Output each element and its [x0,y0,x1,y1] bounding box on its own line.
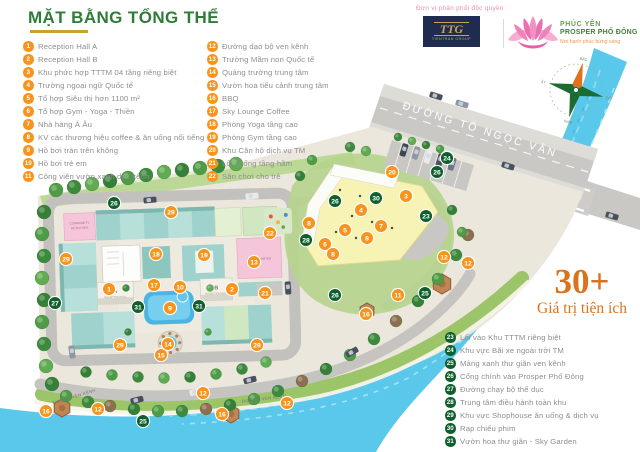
legend-item: 21Lối xuống tầng hầm [207,157,329,170]
svg-text:13: 13 [250,259,258,266]
legend-label: Mảng xanh thư giãn ven kênh [460,359,566,368]
tree-icon [447,205,457,215]
legend-item: 25Mảng xanh thư giãn ven kênh [445,357,599,370]
svg-text:ACTIVITIES: ACTIVITIES [71,226,88,231]
map-marker-29: 29 [59,252,72,265]
svg-text:29: 29 [62,256,70,263]
legend-badge: 28 [445,397,456,408]
legend-group-1: 1Reception Hall A2Reception Hall B3Khu p… [23,40,204,183]
legend-item: 17Sky Lounge Coffee [207,105,329,118]
legend-label: Công viên vườn xanh dọc kênh [38,172,149,181]
legend-label: Hồ bơi tràn trên không [38,146,118,155]
svg-text:12: 12 [199,390,207,397]
svg-text:17: 17 [150,282,158,289]
amenities-caption: Giá trị tiện ích [526,300,638,317]
legend-item: 18Phòng Yoga tầng cao [207,118,329,131]
svg-text:20: 20 [388,169,396,176]
ttg-monogram: TTG [434,22,469,36]
compass-rose: BẮC ĐÔNG NAM TÂY [541,55,611,125]
map-marker-27: 27 [48,296,61,309]
legend-badge: 27 [445,384,456,395]
legend-badge: 18 [207,119,218,130]
map-marker-29: 29 [164,205,177,218]
tree-icon [368,333,380,345]
legend-item: 4Trường ngoại ngữ Quốc tế [23,79,204,92]
tree-icon [104,400,116,412]
svg-text:12: 12 [464,260,472,267]
map-marker-26: 26 [430,165,443,178]
svg-text:BẮC: BẮC [579,56,588,63]
car-icon [143,196,156,203]
svg-text:2: 2 [230,286,234,293]
svg-text:29: 29 [167,209,175,216]
legend-label: Lối xuống tầng hầm [222,159,292,168]
svg-text:8: 8 [331,251,335,258]
map-marker-26: 26 [107,196,120,209]
page-title: MẶT BẰNG TỔNG THỂ [28,8,219,28]
legend-item: 12Đường dạo bộ ven kênh [207,40,329,53]
tree-icon [422,141,430,149]
legend-item: 14Quảng trường trung tâm [207,66,329,79]
legend-item: 16BBQ [207,92,329,105]
tree-icon [176,405,188,417]
legend-item: 26Cổng chính vào Prosper Phố Đông [445,370,599,383]
legend-item: 27Đường chạy bộ thể dục [445,383,599,396]
brand-line1: PHÚC YÊN [560,21,638,29]
svg-text:18: 18 [152,251,160,258]
legend-badge: 2 [23,54,34,65]
tree-icon [35,227,49,241]
legend-badge: 30 [445,423,456,434]
map-marker-4: 4 [354,203,367,216]
map-marker-12: 12 [280,396,293,409]
legend-badge: 5 [23,93,34,104]
legend-item: 20Khu Căn hộ dịch vụ TM [207,144,329,157]
svg-text:COMMUNITY: COMMUNITY [70,221,91,226]
svg-text:26: 26 [331,198,339,205]
map-marker-12: 12 [196,386,209,399]
legend-item: 15Vườn hoa tiểu cảnh trung tâm [207,79,329,92]
svg-text:29: 29 [116,342,124,349]
map-marker-23: 23 [419,209,432,222]
svg-text:6: 6 [323,241,327,248]
map-marker-29: 29 [113,338,126,351]
legend-item: 24Khu vực Bãi xe ngoài trời TM [445,344,599,357]
legend-label: Vườn hoa thư giãn - Sky Garden [460,437,577,446]
svg-text:25: 25 [421,290,429,297]
legend-label: Trường Mầm non Quốc tế [222,55,314,64]
svg-text:RECEPTION HALL: RECEPTION HALL [205,291,228,296]
svg-text:7: 7 [379,223,383,230]
map-marker-10: 10 [173,280,186,293]
map-marker-3: 3 [399,189,412,202]
tree-icon [45,377,59,391]
masterplan-poster: ĐƯỜNG TÔ NGỌC VÂN ĐƯỜNG VEN KÊNH ĐƯỜNG V… [0,0,640,452]
legend-badge: 26 [445,371,456,382]
legend-item: 8KV các thương hiệu coffee & ăn uống nổi… [23,131,204,144]
legend-group-3: 23Lối vào Khu TTTM riêng biệt24Khu vực B… [445,331,599,448]
legend-item: 22Sân chơi cho trẻ [207,170,329,183]
svg-text:B: B [214,285,218,291]
legend-item: 1Reception Hall A [23,40,204,53]
map-marker-5: 5 [338,223,351,236]
title-underline [30,30,88,33]
map-marker-12: 12 [461,256,474,269]
legend-label: Rạp chiếu phim [460,424,516,433]
svg-text:31: 31 [134,304,142,311]
tree-icon [450,249,462,261]
map-marker-22: 22 [263,226,276,239]
legend-label: Tổ hợp Gym - Yoga - Thiền [38,107,135,116]
amenities-highlight: 30+ Giá trị tiện ích [526,264,638,317]
legend-badge: 31 [445,436,456,447]
svg-text:26: 26 [110,200,118,207]
svg-text:25: 25 [139,418,147,425]
tree-icon [211,369,222,380]
legend-label: Reception Hall B [38,55,98,64]
legend-item: 31Vườn hoa thư giãn - Sky Garden [445,435,599,448]
distributor-heading: Đơn vị phân phối độc quyền [416,5,504,12]
legend-badge: 6 [23,106,34,117]
tree-icon [128,403,140,415]
legend-badge: 23 [445,332,456,343]
tree-icon [159,373,170,384]
legend-badge: 25 [445,358,456,369]
svg-text:14: 14 [164,341,172,348]
ttg-name: TIENTRAN GROUP [432,37,471,41]
svg-text:31: 31 [195,303,203,310]
legend-label: Hồ bơi trẻ em [38,159,87,168]
map-marker-31: 31 [131,300,144,313]
map-marker-16: 16 [39,404,52,417]
map-marker-18: 18 [149,247,162,260]
tree-icon [37,205,51,219]
tree-icon [35,271,49,285]
legend-badge: 1 [23,41,34,52]
legend-label: Cổng chính vào Prosper Phố Đông [460,372,584,381]
map-marker-31: 31 [192,299,205,312]
map-marker-17: 17 [147,278,160,291]
legend-item: 29Khu vực Shophouse ăn uống & dịch vụ [445,409,599,422]
car-icon [285,281,292,294]
legend-label: Sân chơi cho trẻ [222,172,281,181]
legend-item: 6Tổ hợp Gym - Yoga - Thiền [23,105,204,118]
tree-icon [107,370,118,381]
map-marker-26: 26 [328,194,341,207]
svg-text:24: 24 [443,155,451,162]
map-marker-13: 13 [247,255,260,268]
svg-text:9: 9 [168,305,172,312]
map-marker-24: 24 [440,151,453,164]
tree-icon [408,137,416,145]
tree-icon [207,285,214,292]
tree-icon [436,145,444,153]
tree-icon [432,273,444,285]
tree-icon [185,372,196,383]
svg-text:19: 19 [200,252,208,259]
legend-item: 3Khu phức hợp TTTM 04 tầng riêng biệt [23,66,204,79]
svg-text:26: 26 [433,169,441,176]
map-marker-28: 28 [299,233,312,246]
tree-icon [205,329,212,336]
svg-text:8: 8 [307,220,311,227]
legend-item: 11Công viên vườn xanh dọc kênh [23,170,204,183]
legend-label: Khu Căn hộ dịch vụ TM [222,146,305,155]
legend-item: 23Lối vào Khu TTTM riêng biệt [445,331,599,344]
map-marker-30: 30 [369,191,382,204]
legend-label: Tổ hợp Siêu thị hơn 1100 m² [38,94,140,103]
legend-label: Phòng Yoga tầng cao [222,120,298,129]
legend-label: Trường ngoại ngữ Quốc tế [38,81,133,90]
legend-badge: 9 [23,145,34,156]
svg-text:NAM: NAM [563,119,572,125]
svg-text:27: 27 [51,300,59,307]
legend-badge: 13 [207,54,218,65]
svg-text:ĐÔNG: ĐÔNG [605,95,611,103]
tree-icon [49,183,63,197]
legend-label: Reception Hall A [38,42,97,51]
car-icon [245,192,258,199]
tree-icon [457,227,467,237]
legend-label: Sky Lounge Coffee [222,107,290,116]
legend-item: 28Trung tâm điều hành toàn khu [445,396,599,409]
legend-badge: 12 [207,41,218,52]
legend-badge: 7 [23,119,34,130]
tree-icon [390,315,402,327]
legend-badge: 8 [23,132,34,143]
legend-label: Lối vào Khu TTTM riêng biệt [460,333,561,342]
svg-text:11: 11 [394,292,401,299]
svg-text:23: 23 [422,213,430,220]
svg-text:16: 16 [218,411,226,418]
tree-icon [345,142,355,152]
legend-badge: 20 [207,145,218,156]
svg-text:1: 1 [107,286,111,293]
map-marker-11: 11 [391,288,404,301]
map-marker-29: 29 [250,338,263,351]
svg-text:16: 16 [42,408,50,415]
map-marker-16: 16 [359,307,372,320]
tree-icon [39,359,53,373]
legend-label: Khu vực Shophouse ăn uống & dịch vụ [460,411,599,420]
legend-label: Nhà hàng Á Âu [38,120,92,129]
map-marker-19: 19 [197,248,210,261]
lotus-logo-icon [506,14,560,54]
legend-label: Khu phức hợp TTTM 04 tầng riêng biệt [38,68,177,77]
map-marker-12: 12 [437,250,450,263]
map-marker-21: 21 [258,286,271,299]
map-marker-1: 1 [102,282,115,295]
svg-text:30: 30 [372,195,380,202]
legend-badge: 15 [207,80,218,91]
svg-text:22: 22 [266,230,274,237]
brand-tagline: Nơi hạnh phúc bừng sáng [560,39,638,45]
legend-badge: 16 [207,93,218,104]
legend-item: 10Hồ bơi trẻ em [23,157,204,170]
legend-item: 30Rạp chiếu phim [445,422,599,435]
legend-badge: 21 [207,158,218,169]
svg-text:4: 4 [359,207,363,214]
legend-badge: 19 [207,132,218,143]
legend-badge: 3 [23,67,34,78]
legend-label: BBQ [222,94,239,103]
legend-badge: 10 [23,158,34,169]
tree-icon [35,315,49,329]
amenities-count: 30+ [526,264,638,300]
legend-badge: 29 [445,410,456,421]
svg-text:5: 5 [343,227,347,234]
map-marker-8: 8 [360,231,373,244]
legend-label: Trung tâm điều hành toàn khu [460,398,566,407]
svg-text:29: 29 [253,342,261,349]
tree-icon [81,367,92,378]
svg-text:28: 28 [302,237,310,244]
legend-label: Vườn hoa tiểu cảnh trung tâm [222,81,329,90]
legend-item: 2Reception Hall B [23,53,204,66]
tree-icon [296,375,308,387]
map-marker-16: 16 [215,407,228,420]
svg-text:26: 26 [331,292,339,299]
legend-label: Khu vực Bãi xe ngoài trời TM [460,346,564,355]
legend-label: Phòng Gym tầng cao [222,133,297,142]
logo-divider [503,19,504,48]
legend-badge: 14 [207,67,218,78]
legend-badge: 24 [445,345,456,356]
svg-text:3: 3 [404,193,408,200]
map-marker-12: 12 [91,402,104,415]
legend-item: 13Trường Mầm non Quốc tế [207,53,329,66]
svg-text:8: 8 [365,235,369,242]
legend-item: 7Nhà hàng Á Âu [23,118,204,131]
svg-text:15: 15 [157,352,165,359]
map-marker-7: 7 [374,219,387,232]
legend-group-2: 12Đường dạo bộ ven kênh13Trường Mầm non … [207,40,329,183]
tree-icon [125,329,132,336]
svg-text:10: 10 [176,284,184,291]
legend-item: 19Phòng Gym tầng cao [207,131,329,144]
map-marker-2: 2 [225,282,238,295]
map-marker-20: 20 [385,165,398,178]
svg-text:21: 21 [261,290,269,297]
svg-text:12: 12 [440,254,448,261]
legend-label: Quảng trường trung tâm [222,68,309,77]
map-marker-8: 8 [302,216,315,229]
svg-text:16: 16 [362,311,370,318]
tree-icon [361,146,371,156]
tientran-group-logo: TTG TIENTRAN GROUP [423,16,480,47]
tree-icon [261,357,272,368]
legend-item: 5Tổ hợp Siêu thị hơn 1100 m² [23,92,204,105]
tree-icon [320,363,332,375]
legend-badge: 17 [207,106,218,117]
brand-wordmark: PHÚC YÊN PROSPER PHỐ ĐÔNG Nơi hạnh phúc … [560,21,638,45]
tree-icon [37,337,51,351]
legend-badge: 11 [23,171,34,182]
legend-badge: 4 [23,80,34,91]
map-marker-8: 8 [326,247,339,260]
tree-icon [237,364,248,375]
map-marker-25: 25 [136,414,149,427]
legend-badge: 22 [207,171,218,182]
svg-text:TÂY: TÂY [541,78,547,85]
map-marker-25: 25 [418,286,431,299]
legend-label: Đường chạy bộ thể dục [460,385,544,394]
legend-item: 9Hồ bơi tràn trên không [23,144,204,157]
tree-icon [152,405,164,417]
legend-label: KV các thương hiệu coffee & ăn uống nổi … [38,133,204,142]
map-marker-15: 15 [154,348,167,361]
tree-icon [37,249,51,263]
svg-text:12: 12 [94,406,102,413]
map-marker-9: 9 [163,301,176,314]
legend-label: Đường dạo bộ ven kênh [222,42,308,51]
brand-line2: PROSPER PHỐ ĐÔNG [560,29,638,37]
map-marker-26: 26 [328,288,341,301]
tree-icon [133,372,144,383]
svg-text:12: 12 [283,400,291,407]
tree-icon [200,403,212,415]
tree-icon [123,285,130,292]
tree-icon [394,133,402,141]
